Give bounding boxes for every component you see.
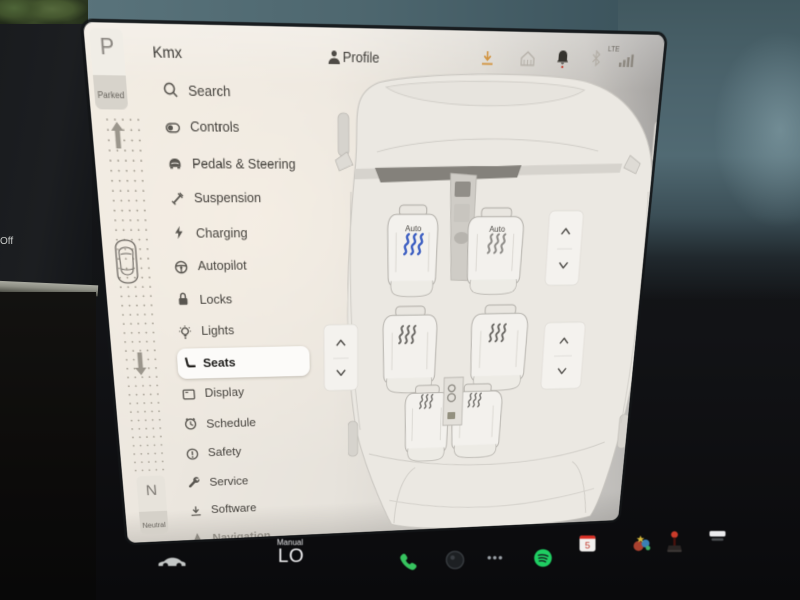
svg-text:Auto: Auto bbox=[405, 224, 422, 234]
svg-text:5: 5 bbox=[585, 541, 590, 552]
svg-text:Auto: Auto bbox=[489, 225, 506, 235]
